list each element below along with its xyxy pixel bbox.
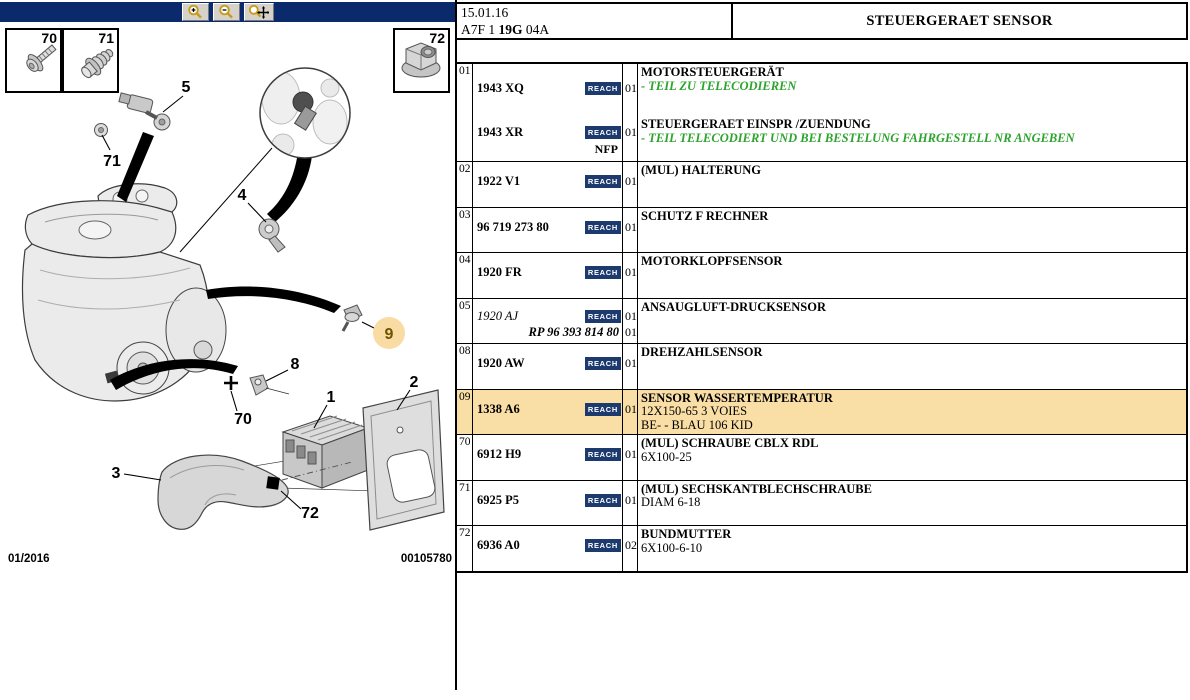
part-number: 6936 A0 — [477, 538, 520, 553]
row-part-cell: 1920 FRREACH — [473, 253, 623, 298]
crankshaft-sensor-part — [119, 93, 170, 130]
row-part-cell: 6936 A0REACH — [473, 526, 623, 571]
row-desc-cell: DREHZAHLSENSOR — [638, 344, 1186, 389]
description-block: BUNDMUTTER6X100-6-10 — [641, 528, 1184, 555]
parts-table: 011943 XQREACH1943 XRREACHNFP0101MOTORST… — [457, 62, 1188, 573]
description-line: MOTORKLOPFSENSOR — [641, 255, 1184, 269]
quantity: 01 — [623, 265, 637, 280]
description-block: STEUERGERAET EINSPR /ZUENDUNG- TEIL TELE… — [641, 118, 1184, 145]
row-part-cell: 1338 A6REACH — [473, 390, 623, 435]
description-line: SENSOR WASSERTEMPERATUR — [641, 392, 1184, 406]
reach-badge[interactable]: REACH — [585, 221, 621, 234]
description-line: (MUL) SCHRAUBE CBLX RDL — [641, 437, 1184, 451]
callout-5[interactable]: 5 — [182, 79, 191, 96]
quantity: 01 — [623, 309, 637, 324]
row-ref: 05 — [457, 299, 473, 344]
table-row[interactable]: 021922 V1REACH01(MUL) HALTERUNG — [457, 161, 1186, 207]
description-block: SENSOR WASSERTEMPERATUR12X150-65 3 VOIES… — [641, 392, 1184, 433]
reach-badge[interactable]: REACH — [585, 175, 621, 188]
reach-badge[interactable]: REACH — [585, 494, 621, 507]
description-line: BUNDMUTTER — [641, 528, 1184, 542]
quantity: 01 — [623, 447, 637, 462]
description-line: (MUL) SECHSKANTBLECHSCHRAUBE — [641, 483, 1184, 497]
part-number: 96 719 273 80 — [477, 220, 549, 235]
description-line: MOTORSTEUERGERÄT — [641, 66, 1184, 80]
diagram-number-label: 00105780 — [340, 553, 452, 565]
row-desc-cell: ANSAUGLUFT-DRUCKSENSOR — [638, 299, 1186, 344]
table-row[interactable]: 706912 H9REACH01(MUL) SCHRAUBE CBLX RDL6… — [457, 434, 1186, 480]
table-row[interactable]: 041920 FRREACH01MOTORKLOPFSENSOR — [457, 252, 1186, 298]
reach-badge[interactable]: REACH — [585, 266, 621, 279]
row-qty-cell: 0101 — [623, 64, 638, 161]
exploded-parts-diagram: 5 71 4 9 8 70 1 2 3 72 — [0, 0, 455, 700]
row-qty-cell: 02 — [623, 526, 638, 571]
callout-2[interactable]: 2 — [410, 374, 419, 391]
row-desc-cell: SCHUTZ F RECHNER — [638, 208, 1186, 253]
row-part-cell: 1920 AJREACHRP 96 393 814 80 — [473, 299, 623, 344]
table-row[interactable]: 081920 AWREACH01DREHZAHLSENSOR — [457, 343, 1186, 389]
row-qty-cell: 01 — [623, 162, 638, 207]
engine-illustration — [22, 148, 272, 401]
bracket-plate-part — [363, 390, 444, 530]
reach-badge[interactable]: REACH — [585, 403, 621, 416]
part-number: 6925 P5 — [477, 493, 519, 508]
description-block: (MUL) HALTERUNG — [641, 164, 1184, 178]
row-qty-cell: 01 — [623, 253, 638, 298]
description-block: ANSAUGLUFT-DRUCKSENSOR — [641, 301, 1184, 315]
quantity: 01 — [623, 402, 637, 417]
callout-9[interactable]: 9 — [385, 326, 394, 343]
row-ref: 72 — [457, 526, 473, 571]
reach-badge[interactable]: REACH — [585, 357, 621, 370]
knock-sensor-part — [259, 219, 285, 252]
row-desc-cell: MOTORSTEUERGERÄT- TEIL ZU TELECODIERENST… — [638, 64, 1186, 161]
callout-70[interactable]: 70 — [234, 411, 252, 428]
parts-catalog-page: 70 71 72 — [0, 0, 1190, 700]
part-number: RP 96 393 814 80 — [528, 325, 619, 340]
description-line: DREHZAHLSENSOR — [641, 346, 1184, 360]
description-line: - TEIL TELECODIERT UND BEI BESTELUNG FAH… — [641, 132, 1184, 146]
row-part-cell: 6925 P5REACH — [473, 481, 623, 526]
clip-8-part — [224, 375, 289, 395]
diagram-date-label: 01/2016 — [8, 553, 50, 565]
description-block: MOTORKLOPFSENSOR — [641, 255, 1184, 269]
description-block: (MUL) SECHSKANTBLECHSCHRAUBEDIAM 6-18 — [641, 483, 1184, 510]
row-qty-cell: 01 — [623, 435, 638, 480]
callout-8[interactable]: 8 — [291, 356, 300, 373]
row-qty-cell: 0101 — [623, 299, 638, 344]
callout-3[interactable]: 3 — [112, 465, 121, 482]
row-qty-cell: 01 — [623, 208, 638, 253]
quantity: 01 — [623, 125, 637, 140]
row-ref: 01 — [457, 64, 473, 161]
table-row[interactable]: 726936 A0REACH02BUNDMUTTER6X100-6-10 — [457, 525, 1186, 571]
header-plate-code: A7F 1 19G 04A — [461, 21, 731, 38]
row-ref: 08 — [457, 344, 473, 389]
plate-code-bold: 19G — [499, 22, 523, 37]
row-part-cell: 96 719 273 80REACH — [473, 208, 623, 253]
quantity: 01 — [623, 325, 637, 340]
row-part-cell: 1943 XQREACH1943 XRREACHNFP — [473, 64, 623, 161]
row-qty-cell: 01 — [623, 390, 638, 435]
description-line: SCHUTZ F RECHNER — [641, 210, 1184, 224]
reach-badge[interactable]: REACH — [585, 310, 621, 323]
table-row[interactable]: 011943 XQREACH1943 XRREACHNFP0101MOTORST… — [457, 64, 1186, 161]
part-number: 1920 FR — [477, 265, 522, 280]
description-line: ANSAUGLUFT-DRUCKSENSOR — [641, 301, 1184, 315]
reach-badge[interactable]: REACH — [585, 539, 621, 552]
row-desc-cell: (MUL) SCHRAUBE CBLX RDL6X100-25 — [638, 435, 1186, 480]
part-number: 6912 H9 — [477, 447, 521, 462]
description-block: (MUL) SCHRAUBE CBLX RDL6X100-25 — [641, 437, 1184, 464]
callout-9-highlight[interactable]: 9 — [373, 317, 405, 349]
part-number: 1943 XR — [477, 125, 523, 140]
row-qty-cell: 01 — [623, 344, 638, 389]
plate-code-suffix: 04A — [523, 22, 550, 37]
part-number: 1920 AW — [477, 356, 525, 371]
part-number: 1922 V1 — [477, 174, 520, 189]
reach-badge[interactable]: REACH — [585, 126, 621, 139]
quantity: 01 — [623, 81, 637, 96]
header-code-box: 15.01.16 A7F 1 19G 04A — [457, 4, 733, 38]
plate-code-prefix: A7F 1 — [461, 22, 499, 37]
row-part-cell: 1922 V1REACH — [473, 162, 623, 207]
row-ref: 02 — [457, 162, 473, 207]
part-number: 1338 A6 — [477, 402, 520, 417]
table-row[interactable]: 0396 719 273 80REACH01SCHUTZ F RECHNER — [457, 207, 1186, 253]
description-line: BE- - BLAU 106 KID — [641, 419, 1184, 433]
catalog-header: 15.01.16 A7F 1 19G 04A STEUERGERAET SENS… — [457, 2, 1188, 40]
description-line: 6X100-6-10 — [641, 542, 1184, 556]
description-line: (MUL) HALTERUNG — [641, 164, 1184, 178]
part-number: 1920 AJ — [477, 309, 518, 324]
callout-71[interactable]: 71 — [103, 153, 121, 170]
quantity: 01 — [623, 220, 637, 235]
quantity: 01 — [623, 356, 637, 371]
row-desc-cell: (MUL) SECHSKANTBLECHSCHRAUBEDIAM 6-18 — [638, 481, 1186, 526]
description-line: DIAM 6-18 — [641, 496, 1184, 510]
row-ref: 70 — [457, 435, 473, 480]
washer-71-part — [95, 124, 108, 137]
quantity: 01 — [623, 174, 637, 189]
description-line: 12X150-65 3 VOIES — [641, 405, 1184, 419]
part-number: 1943 XQ — [477, 81, 524, 96]
table-row[interactable]: 716925 P5REACH01(MUL) SECHSKANTBLECHSCHR… — [457, 480, 1186, 526]
row-ref: 71 — [457, 481, 473, 526]
row-part-cell: 1920 AWREACH — [473, 344, 623, 389]
quantity: 01 — [623, 493, 637, 508]
row-desc-cell: MOTORKLOPFSENSOR — [638, 253, 1186, 298]
header-date: 15.01.16 — [461, 4, 731, 21]
cover-part — [158, 455, 288, 529]
part-note: NFP — [473, 142, 622, 157]
description-line: 6X100-25 — [641, 451, 1184, 465]
row-ref: 09 — [457, 390, 473, 435]
table-row[interactable]: 091338 A6REACH01SENSOR WASSERTEMPERATUR1… — [457, 389, 1186, 435]
description-line: STEUERGERAET EINSPR /ZUENDUNG — [641, 118, 1184, 132]
description-block: DREHZAHLSENSOR — [641, 346, 1184, 360]
callout-4[interactable]: 4 — [238, 187, 247, 204]
row-desc-cell: (MUL) HALTERUNG — [638, 162, 1186, 207]
row-part-cell: 6912 H9REACH — [473, 435, 623, 480]
row-ref: 03 — [457, 208, 473, 253]
row-desc-cell: SENSOR WASSERTEMPERATUR12X150-65 3 VOIES… — [638, 390, 1186, 435]
row-desc-cell: BUNDMUTTER6X100-6-10 — [638, 526, 1186, 571]
description-block: MOTORSTEUERGERÄT- TEIL ZU TELECODIEREN — [641, 66, 1184, 93]
row-ref: 04 — [457, 253, 473, 298]
reach-badge[interactable]: REACH — [585, 448, 621, 461]
page-title: STEUERGERAET SENSOR — [733, 4, 1186, 38]
callout-72[interactable]: 72 — [301, 505, 319, 522]
reach-badge[interactable]: REACH — [585, 82, 621, 95]
detail-circle-view — [260, 68, 350, 158]
table-row[interactable]: 051920 AJREACHRP 96 393 814 800101ANSAUG… — [457, 298, 1186, 344]
row-qty-cell: 01 — [623, 481, 638, 526]
description-block: SCHUTZ F RECHNER — [641, 210, 1184, 224]
description-line: - TEIL ZU TELECODIEREN — [641, 80, 1184, 94]
callout-1[interactable]: 1 — [327, 389, 336, 406]
temp-sensor-part — [343, 305, 362, 331]
quantity: 02 — [623, 538, 637, 553]
